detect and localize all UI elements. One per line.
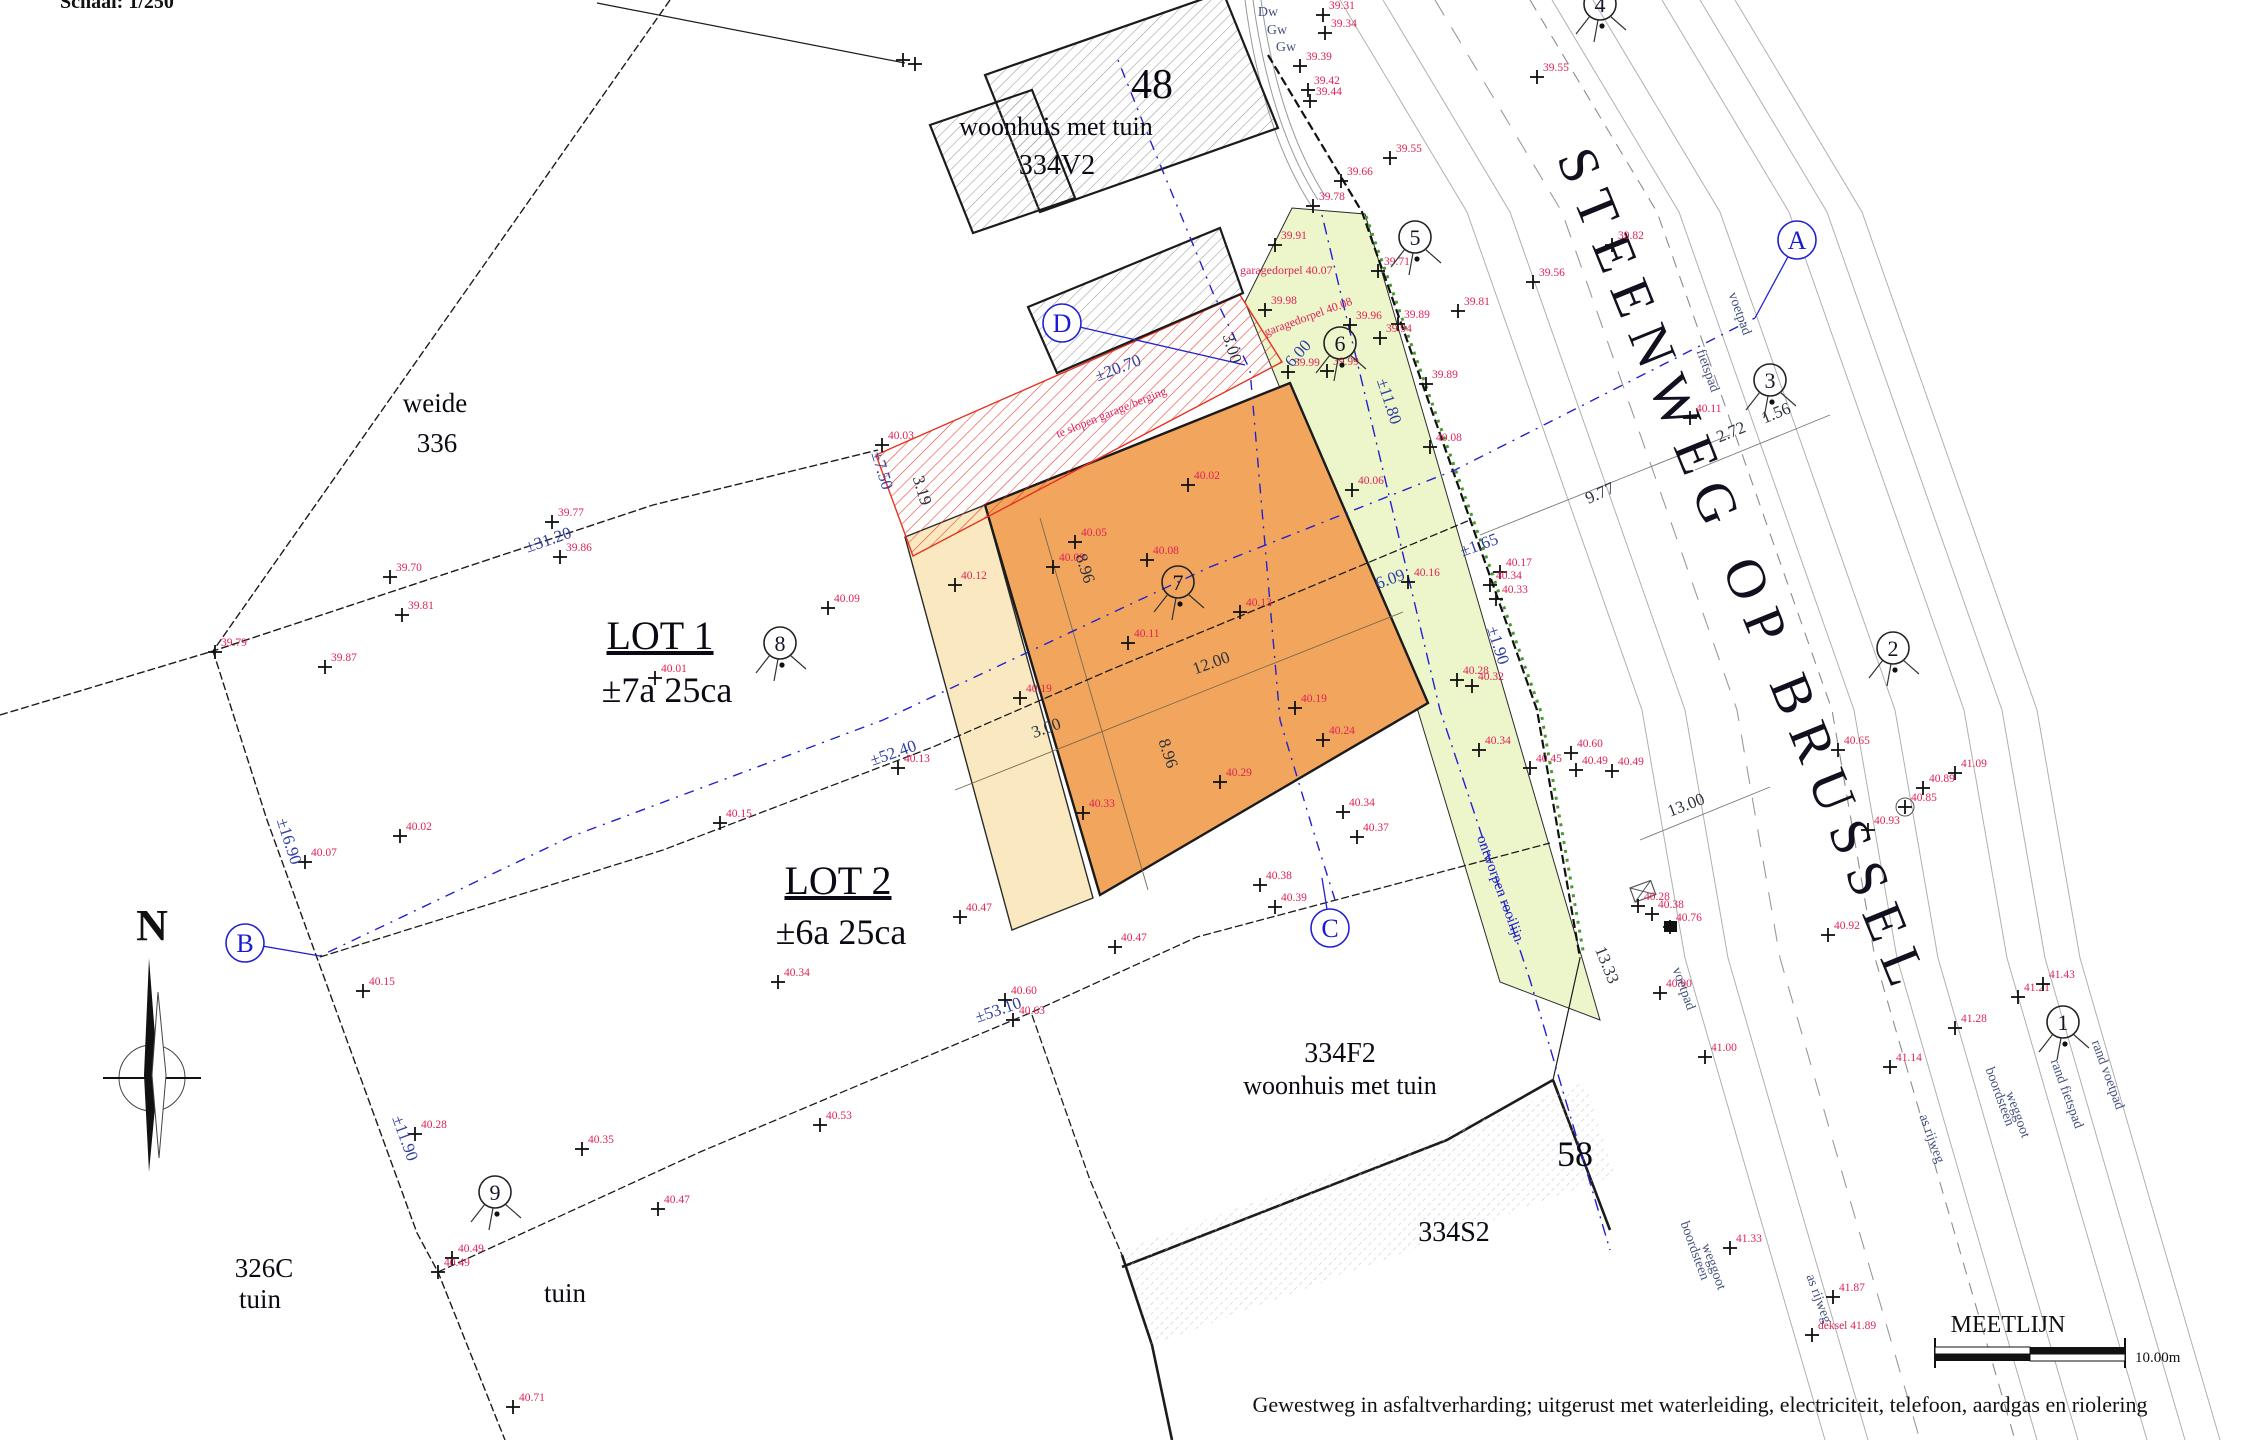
elevation-value: 40.08 xyxy=(1153,545,1179,557)
dimension-label: ±53.10 xyxy=(973,993,1024,1026)
parcel-label: 334S2 xyxy=(1418,1217,1490,1248)
tripod-dot xyxy=(494,1211,499,1216)
survey-point: 39.39 xyxy=(1293,51,1332,73)
elevation-value: 40.89 xyxy=(1929,773,1955,785)
elevation-value: 40.16 xyxy=(1414,567,1440,579)
elevation-value: 39.81 xyxy=(1464,296,1490,308)
elevation-value: 39.39 xyxy=(1306,51,1332,63)
survey-point: 40.47 xyxy=(1108,932,1147,954)
elevation-value: 40.02 xyxy=(1194,470,1220,482)
parcel334f2-west-boundary xyxy=(1032,1015,1122,1255)
elevation-value: 39.71 xyxy=(1384,256,1410,268)
station-9: 9 xyxy=(471,1176,521,1230)
elevation-value: 40.49 xyxy=(458,1243,484,1255)
elevation-value: 40.47 xyxy=(664,1194,690,1206)
station-1: 1 xyxy=(2039,1006,2089,1060)
ref-letter-C: C xyxy=(1311,878,1349,947)
elevation-value: 40.12 xyxy=(961,570,987,582)
station-number: 6 xyxy=(1335,331,1346,356)
road-label: as rijweg xyxy=(1916,1112,1948,1165)
survey-point: 40.38 xyxy=(1253,870,1292,892)
station-number: 3 xyxy=(1765,368,1776,393)
survey-point: 39.81 xyxy=(395,600,434,622)
elevation-value: 40.34 xyxy=(1485,735,1511,747)
elevation-value: 40.32 xyxy=(1478,671,1504,683)
elevation-value: 40.47 xyxy=(966,902,992,914)
elevation-value: 40.39 xyxy=(1281,892,1307,904)
elevation-value: 40.02 xyxy=(406,821,432,833)
elevation-value: 41.43 xyxy=(2049,969,2075,981)
elevation-value: 39.55 xyxy=(1543,62,1569,74)
station-2: 2 xyxy=(1869,632,1919,686)
elevation-value: 40.93 xyxy=(1874,815,1900,827)
elevation-value: 39.81 xyxy=(408,600,434,612)
parcel-label: 58 xyxy=(1557,1134,1593,1174)
elevation-value: 40.49 xyxy=(1582,755,1608,767)
survey-point: 39.81 xyxy=(1451,296,1490,318)
elevation-value: 40.24 xyxy=(1329,725,1355,737)
station-4: 4 xyxy=(1576,0,1626,42)
station-number: 9 xyxy=(490,1180,501,1205)
scalebar-seg3 xyxy=(1935,1354,2030,1361)
survey-point xyxy=(908,57,922,71)
elevation-value: 41.87 xyxy=(1839,1282,1865,1294)
tripod-dot xyxy=(1414,256,1419,261)
scalebar-value: 10.00m xyxy=(2135,1350,2181,1366)
elevation-value: 40.28 xyxy=(421,1119,447,1131)
elevation-value: 39.82 xyxy=(1618,230,1644,242)
elevation-value: 40.33 xyxy=(1502,584,1528,596)
parcel-label: 334F2 xyxy=(1304,1038,1376,1069)
elevation-value: 40.13 xyxy=(1246,597,1272,609)
survey-point: 40.49 xyxy=(1569,755,1608,777)
elevation-value: 41.09 xyxy=(1961,758,1987,770)
red-annotation: garagedorpel 40.07 xyxy=(1240,263,1333,277)
elevation-value: 40.85 xyxy=(1911,792,1937,804)
elevation-value: 40.08 xyxy=(1436,432,1462,444)
survey-point: 41.00 xyxy=(1698,1042,1737,1064)
survey-point: 40.34 xyxy=(771,967,810,989)
survey-point: 39.55 xyxy=(1530,62,1569,84)
survey-point: 40.15 xyxy=(713,808,752,830)
elevation-value: 39.79 xyxy=(221,637,247,649)
elevation-value: 40.47 xyxy=(1121,932,1147,944)
station-8: 8 xyxy=(756,627,806,681)
survey-point: 40.49 xyxy=(1605,756,1644,778)
driveway-hatch xyxy=(1122,1082,1615,1345)
survey-point: 39.87 xyxy=(318,652,357,674)
elevation-value: 39.70 xyxy=(396,562,422,574)
road-name: STEENWEG OP BRUSSEL xyxy=(1544,139,1943,1007)
survey-point: 40.33 xyxy=(1489,584,1528,606)
elevation-value: 40.29 xyxy=(1226,767,1252,779)
elevation-value: 40.34 xyxy=(1349,797,1375,809)
parcel-label: 326C xyxy=(235,1253,294,1283)
survey-point: 40.35 xyxy=(575,1134,614,1156)
parcel-label: 48 xyxy=(1131,62,1173,108)
elevation-value: 40.19 xyxy=(1301,693,1327,705)
meetlijn-legend: MEETLIJN 10.00m xyxy=(1935,1312,2181,1368)
survey-point: 41.28 xyxy=(1948,1013,1987,1035)
road-line-5 xyxy=(1662,0,2147,1440)
survey-point: deksel 41.89 xyxy=(1805,1320,1876,1342)
dimension-label: ±16.90 xyxy=(273,816,306,867)
letter-value: B xyxy=(236,929,253,958)
elevation-value: 40.15 xyxy=(726,808,752,820)
scale-note: Schaal: 1/250 xyxy=(60,0,174,13)
elevation-value: 40.17 xyxy=(1506,557,1532,569)
building-zone xyxy=(876,208,1600,1020)
elevation-value: 40.35 xyxy=(588,1134,614,1146)
parcel-label: 336 xyxy=(417,428,458,458)
survey-point: 40.34 xyxy=(1336,797,1375,819)
tripod-dot xyxy=(2062,1041,2067,1046)
weide-east-boundary xyxy=(213,0,670,651)
elevation-value: 39.44 xyxy=(1316,86,1342,98)
elevation-value: 40.71 xyxy=(519,1392,545,1404)
parcel-label: LOT 2 xyxy=(784,858,891,903)
dimension-label: 2.72 xyxy=(1714,418,1749,447)
elevation-value: 40.09 xyxy=(834,593,860,605)
elevation-value: 40.33 xyxy=(1089,798,1115,810)
scalebar-seg4 xyxy=(2030,1354,2125,1361)
elevation-value: 39.31 xyxy=(1329,0,1355,12)
survey-plan: ontworpen rooilijn STEENWEG OP BRUSSEL N… xyxy=(0,0,2267,1440)
survey-point: 40.15 xyxy=(356,976,395,998)
survey-point: 39.56 xyxy=(1526,267,1565,289)
survey-point: 40.53 xyxy=(813,1110,852,1132)
parcel-label: ±6a 25ca xyxy=(776,912,907,952)
weide-lot1-boundary xyxy=(0,450,878,715)
elevation-value: 40.34 xyxy=(1496,570,1522,582)
elevation-value: 39.94 xyxy=(1386,323,1412,335)
elevation-value: 40.06 xyxy=(1358,475,1384,487)
elevation-value: 39.86 xyxy=(566,542,592,554)
survey-point: 40.09 xyxy=(821,593,860,615)
scalebar-seg1 xyxy=(1935,1347,2030,1354)
elevation-value: 39.66 xyxy=(1347,166,1373,178)
survey-point: 40.37 xyxy=(1350,822,1389,844)
parcel-label: tuin xyxy=(544,1278,587,1308)
elevation-value: 39.78 xyxy=(1319,191,1345,203)
survey-point: 40.02 xyxy=(393,821,432,843)
west-boundary xyxy=(213,651,505,1440)
elevation-value: 40.34 xyxy=(784,967,810,979)
tripod-dot xyxy=(1892,667,1897,672)
survey-point xyxy=(896,53,910,67)
elevation-value: 40.03 xyxy=(888,430,914,442)
road-label: Gw xyxy=(1267,23,1288,38)
north-arrow: N xyxy=(103,901,201,1172)
station-number: 2 xyxy=(1888,636,1899,661)
survey-point: 41.14 xyxy=(1883,1052,1922,1074)
station-number: 7 xyxy=(1173,570,1184,595)
letter-value: C xyxy=(1321,914,1338,943)
tripod-dot xyxy=(1177,601,1182,606)
elevation-value: 40.38 xyxy=(1658,899,1684,911)
survey-point: 40.45 xyxy=(1523,753,1562,775)
elevation-value: 39.87 xyxy=(331,652,357,664)
survey-point: 40.85 xyxy=(1898,792,1937,814)
road-label: as rijweg xyxy=(1803,1272,1835,1325)
elevation-value: 39.98 xyxy=(1271,295,1297,307)
survey-point: 39.55 xyxy=(1383,143,1422,165)
elevation-value: 40.15 xyxy=(369,976,395,988)
elevation-value: 39.77 xyxy=(558,507,584,519)
survey-point: 40.39 xyxy=(1268,892,1307,914)
elevation-value: 39.34 xyxy=(1331,18,1357,30)
road-label: rand voetpad xyxy=(2088,1038,2127,1111)
elevation-value: 40.38 xyxy=(1266,870,1292,882)
tripod-dot xyxy=(1599,23,1604,28)
parcel-label: 334V2 xyxy=(1019,150,1095,181)
parcel-label: weide xyxy=(403,388,467,418)
survey-point: 40.92 xyxy=(1821,920,1860,942)
dimension-label: 1.56 xyxy=(1759,399,1794,428)
dimension-label: ±11.90 xyxy=(388,1113,422,1164)
meetlijn-title: MEETLIJN xyxy=(1951,1312,2066,1338)
elevation-value: 40.37 xyxy=(1363,822,1389,834)
elevation-value: 40.65 xyxy=(1844,735,1870,747)
elevation-value: 40.49 xyxy=(444,1257,470,1269)
elevation-value: 41.28 xyxy=(1961,1013,1987,1025)
survey-point: 41.87 xyxy=(1826,1282,1865,1304)
ref-letter-B: B xyxy=(226,924,320,962)
survey-point: 41.33 xyxy=(1723,1233,1762,1255)
elevation-value: 40.92 xyxy=(1834,920,1860,932)
parcel-top-boundary xyxy=(597,3,905,63)
elevation-value: 40.07 xyxy=(311,847,337,859)
survey-point: 40.47 xyxy=(953,902,992,924)
elevation-value: 39.55 xyxy=(1396,143,1422,155)
elevation-value: 40.11 xyxy=(1134,628,1160,640)
letter-value: D xyxy=(1053,309,1072,338)
parcel-label: tuin xyxy=(239,1284,282,1314)
station-number: 4 xyxy=(1595,0,1606,17)
parcel-label: woonhuis met tuin xyxy=(1243,1071,1437,1100)
tripod-dot xyxy=(779,662,784,667)
road-label: rand fietspad xyxy=(2047,1057,2086,1130)
elevation-value: 40.49 xyxy=(1618,756,1644,768)
elevation-value: 41.00 xyxy=(1711,1042,1737,1054)
elevation-value: 39.89 xyxy=(1404,309,1430,321)
elevation-value: 41.33 xyxy=(1736,1233,1762,1245)
survey-point: 40.71 xyxy=(506,1392,545,1414)
elevation-value: 41.14 xyxy=(1896,1052,1922,1064)
elevation-value: 40.76 xyxy=(1676,912,1702,924)
elevation-value: 40.45 xyxy=(1536,753,1562,765)
scalebar-seg2 xyxy=(2030,1347,2125,1354)
survey-point: 39.66 xyxy=(1334,166,1373,188)
bottom-note: Gewestweg in asfaltverharding; uitgerust… xyxy=(1253,1392,2148,1417)
station-number: 8 xyxy=(775,631,786,656)
parcel-label: LOT 1 xyxy=(606,613,713,658)
elevation-value: 40.05 xyxy=(1081,527,1107,539)
elevation-value: 40.60 xyxy=(1577,738,1603,750)
letter-value: A xyxy=(1788,226,1807,255)
parcel-label: woonhuis met tuin xyxy=(959,112,1153,141)
elevation-value: 40.11 xyxy=(1696,403,1722,415)
road-label: Gw xyxy=(1276,40,1297,55)
elevation-value: 39.96 xyxy=(1356,310,1382,322)
dimension-label: 13.00 xyxy=(1665,789,1708,820)
tripod-dot xyxy=(1339,362,1344,367)
road-label: Dw xyxy=(1258,5,1279,20)
elevation-value: 40.19 xyxy=(1026,683,1052,695)
station-number: 1 xyxy=(2058,1010,2069,1035)
ref-letter-A: A xyxy=(1755,221,1816,318)
survey-point: 40.49 xyxy=(431,1257,470,1279)
elevation-value: 40.53 xyxy=(826,1110,852,1122)
elevation-value: 39.91 xyxy=(1281,230,1307,242)
elevation-value: 39.89 xyxy=(1432,369,1458,381)
tripod-dot xyxy=(1769,399,1774,404)
elevation-value: 39.56 xyxy=(1539,267,1565,279)
dimension-label: ±1.65 xyxy=(1458,529,1501,560)
survey-point: 39.70 xyxy=(383,562,422,584)
compass-needle-white xyxy=(152,992,166,1158)
survey-point: 40.47 xyxy=(651,1194,690,1216)
dimension-label: 13.33 xyxy=(1591,944,1623,987)
station-number: 5 xyxy=(1410,225,1421,250)
parcel-label: ±7a 25ca xyxy=(602,670,733,710)
north-label: N xyxy=(136,901,168,950)
